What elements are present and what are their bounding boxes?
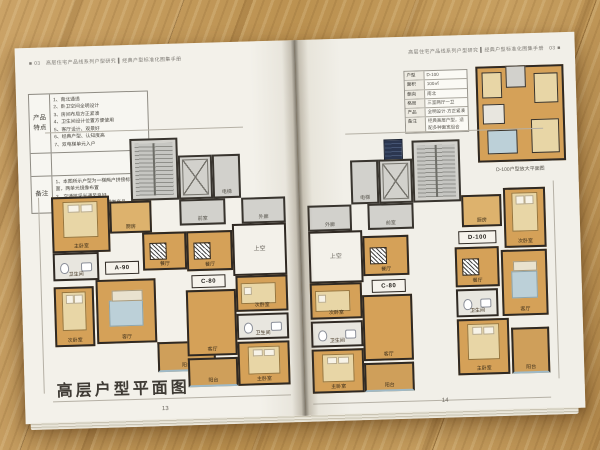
plan-room: 客厅 bbox=[501, 249, 549, 316]
left-page-number: 13 bbox=[25, 402, 305, 416]
inset-plan-room bbox=[534, 72, 559, 103]
room-label: 厨房 bbox=[464, 218, 500, 224]
room-label: 卫生间 bbox=[313, 338, 361, 344]
plan-room: 主卧室 bbox=[51, 196, 111, 254]
plan-room: 上空 bbox=[308, 230, 364, 284]
plan-room: 阳台 bbox=[364, 362, 415, 392]
plan-room: 客厅 bbox=[362, 294, 414, 361]
plan-room bbox=[129, 138, 179, 201]
plan-room: 卫生间 bbox=[456, 288, 499, 317]
plan-room bbox=[411, 139, 461, 202]
inset-spec-table: 户型D-100面积100㎡朝向南北格局三室两厅一卫产品全明设计·方正紧凑备注经典… bbox=[403, 69, 469, 134]
plan-room: 客厅 bbox=[186, 289, 238, 356]
rug-symbol bbox=[511, 271, 538, 299]
plan-room: 卫生间 bbox=[311, 320, 364, 348]
room-label: C-80 bbox=[201, 278, 216, 284]
room-label: 外廊 bbox=[310, 223, 350, 229]
table-symbol bbox=[193, 242, 210, 259]
bed-symbol bbox=[248, 346, 281, 375]
stair-symbol bbox=[417, 144, 457, 197]
table-cell: 南北 bbox=[425, 89, 467, 99]
table-cell: 面积 bbox=[405, 81, 425, 90]
unit-tag: D-100 bbox=[458, 230, 496, 244]
plan-room: 上空 bbox=[232, 222, 288, 276]
room-label: 餐厅 bbox=[365, 267, 407, 273]
room-label: 外廊 bbox=[244, 214, 284, 220]
room-label: 餐厅 bbox=[145, 261, 185, 267]
room-label: 上空 bbox=[311, 253, 361, 260]
table-cell: 格局 bbox=[405, 99, 425, 108]
left-page: ■ 03 高层住宅产品线系列户型研究 ▍经典户型标准化图集手册 产品特点 1、南… bbox=[15, 40, 306, 424]
plan-room: 卫生间 bbox=[237, 312, 290, 340]
room-label: 上空 bbox=[235, 245, 285, 252]
room-label: 次卧室 bbox=[57, 338, 93, 344]
inset-plan-room bbox=[482, 104, 505, 125]
table-symbol bbox=[149, 242, 166, 259]
unit-tag: C-80 bbox=[372, 279, 406, 293]
room-label: 卫生间 bbox=[458, 308, 496, 314]
room-label: 客厅 bbox=[366, 352, 412, 358]
bed-symbol bbox=[62, 291, 87, 331]
bed-symbol bbox=[467, 323, 500, 360]
room-label: 电梯 bbox=[215, 190, 239, 196]
plan-room: 餐厅 bbox=[362, 235, 409, 276]
plan-room: 主卧室 bbox=[457, 318, 511, 376]
room-label: 主卧室 bbox=[460, 366, 508, 372]
table-cell: 户型 bbox=[404, 71, 424, 80]
right-page-header: 高层住宅产品线系列户型研究 ▍经典户型标准化图集手册 03 ■ bbox=[309, 44, 561, 58]
room-label: 卫生间 bbox=[55, 272, 97, 278]
room-label: 阳台 bbox=[514, 365, 548, 371]
room-label: 次卧室 bbox=[506, 239, 544, 245]
plan-room: 外廊 bbox=[307, 204, 352, 231]
plan-room: 客厅 bbox=[95, 278, 157, 344]
room-label: 电梯 bbox=[353, 196, 377, 202]
room-label: 次卧室 bbox=[238, 302, 286, 308]
right-page-number: 14 bbox=[305, 394, 585, 408]
room-label: D-100 bbox=[468, 234, 487, 241]
right-floor-plan: 电梯前室外廊上空餐厅次卧室卫生间主卧室客厅阳台厨房次卧室餐厅客厅卫生间主卧室阳台… bbox=[306, 137, 551, 396]
plan-room: 次卧室 bbox=[503, 187, 547, 248]
plan-room: 前室 bbox=[367, 203, 414, 230]
room-label: 前室 bbox=[370, 221, 412, 227]
room-label: 主卧室 bbox=[315, 384, 363, 390]
room-label: 次卧室 bbox=[312, 310, 360, 316]
plan-room: 餐厅 bbox=[142, 231, 187, 270]
table-cell: D-100 bbox=[424, 70, 466, 80]
room-label: 客厅 bbox=[190, 347, 236, 353]
bed-symbol bbox=[62, 201, 99, 238]
plan-room: 前室 bbox=[179, 198, 226, 225]
inset-plan-room bbox=[481, 72, 502, 99]
dimension-line bbox=[38, 198, 45, 394]
plan-room: 电梯 bbox=[212, 154, 241, 199]
left-floor-plan: 电梯前室外廊上空主卧室厨房餐厅卫生间客厅次卧室阳台餐厅次卧室卫生间主卧室客厅阳台… bbox=[45, 134, 290, 393]
plan-room: 次卧室 bbox=[310, 282, 363, 320]
unit-tag: A-90 bbox=[105, 261, 139, 275]
room-label: 客厅 bbox=[99, 334, 155, 341]
bed2-symbol bbox=[315, 290, 350, 312]
table-cell: 全明设计·方正紧凑 bbox=[426, 107, 468, 117]
plan-room: 外廊 bbox=[241, 196, 286, 223]
dimension-line bbox=[553, 180, 560, 378]
plan-room: 次卧室 bbox=[235, 274, 288, 312]
left-page-header: ■ 03 高层住宅产品线系列户型研究 ▍经典户型标准化图集手册 bbox=[29, 52, 281, 66]
table-cell: 朝向 bbox=[405, 90, 425, 99]
room-label: 主卧室 bbox=[240, 376, 288, 382]
room-label: 卫生间 bbox=[239, 330, 287, 336]
bed2-symbol bbox=[241, 282, 276, 304]
room-label: 阳台 bbox=[190, 378, 236, 384]
plan-room: 餐厅 bbox=[455, 246, 500, 287]
page-title: 高层户型平面图 bbox=[56, 373, 190, 401]
right-page: 高层住宅产品线系列户型研究 ▍经典户型标准化图集手册 03 ■ 户型D-100面… bbox=[294, 32, 585, 416]
table-cell: 100㎡ bbox=[425, 79, 467, 89]
plan-room bbox=[378, 159, 413, 204]
elev-symbol bbox=[382, 163, 409, 200]
plan-room: 阳台 bbox=[511, 327, 550, 374]
open-booklet: ■ 03 高层住宅产品线系列户型研究 ▍经典户型标准化图集手册 产品特点 1、南… bbox=[15, 32, 586, 424]
unit-tag: C-80 bbox=[191, 274, 225, 288]
stair-symbol bbox=[134, 143, 174, 196]
plan-room: 卫生间 bbox=[53, 252, 100, 281]
table-cell: 三室两厅一卫 bbox=[425, 98, 467, 108]
room-label: 餐厅 bbox=[458, 278, 498, 284]
room-label: 客厅 bbox=[504, 307, 546, 313]
plan-room: 厨房 bbox=[109, 200, 152, 233]
plan-room: 主卧室 bbox=[237, 340, 290, 386]
room-label: 餐厅 bbox=[189, 262, 231, 268]
rug-symbol bbox=[109, 300, 144, 327]
plan-room: 次卧室 bbox=[54, 286, 96, 347]
bed-symbol bbox=[322, 353, 355, 382]
plan-room bbox=[178, 155, 213, 200]
bed-symbol bbox=[511, 192, 538, 232]
plan-room: 阳台 bbox=[188, 357, 239, 387]
plan-room: 主卧室 bbox=[312, 348, 365, 394]
room-label: 前室 bbox=[182, 216, 224, 222]
plan-room: 厨房 bbox=[461, 194, 502, 227]
table-symbol bbox=[462, 258, 479, 275]
room-label: C-80 bbox=[381, 283, 396, 289]
room-label: 厨房 bbox=[112, 224, 150, 230]
table-symbol bbox=[370, 247, 387, 264]
inset-plan-room bbox=[505, 65, 526, 88]
plan-room: 电梯 bbox=[350, 160, 379, 205]
plan-room: 餐厅 bbox=[186, 230, 233, 271]
room-label: 主卧室 bbox=[54, 244, 108, 251]
room-label: 阳台 bbox=[367, 383, 413, 389]
table-cell: 产品 bbox=[406, 108, 426, 117]
room-label: A-90 bbox=[115, 265, 130, 271]
elev-symbol bbox=[182, 159, 209, 196]
